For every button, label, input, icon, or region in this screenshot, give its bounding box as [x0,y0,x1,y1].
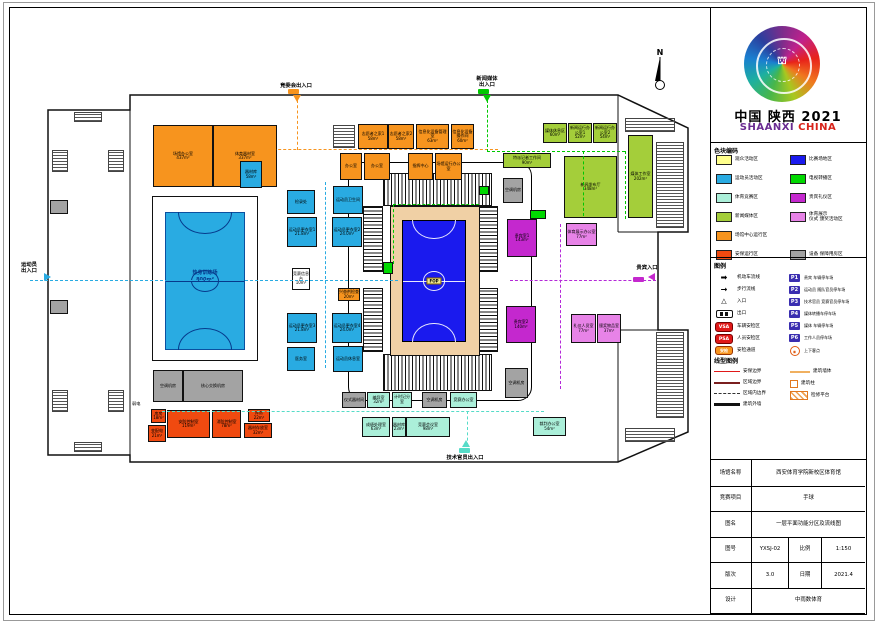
symbol-legend-item: P4媒体转播车停车场 [788,310,866,318]
stair-block [656,332,684,418]
room-area: 21m² [152,434,163,438]
room-area: 21.8m² [295,232,309,236]
room: 贵宾室2140m² [506,306,536,343]
room-label: 空调机房 [509,381,525,386]
symbol-legend-item: △入口 [714,298,782,305]
legend-label: 建筑外墙 [743,402,761,407]
room: 媒体工作室202m² [628,135,653,218]
entrance-marker-icon [462,440,470,447]
room [50,300,68,314]
room-area: 78m² [221,424,232,428]
line-legend-item: 建筑墙体 [790,369,831,374]
room: 信息化设备操作间60m² [451,124,474,149]
title-block-row: 图名一层平面功能分区及流线图 [710,511,865,538]
room: 媒体休息区60m² [543,123,567,143]
fop-court: FOP [402,220,466,342]
title-block-value: 3.0 [752,562,789,588]
symbol-legend-item: 出口 [714,310,782,318]
symbol-icon-cell: PSA [714,334,734,344]
line-legend-item: 建筑外墙 [714,402,761,407]
room: 裁判办公室54m² [533,417,566,436]
room: 场馆办公室437m² [153,125,213,187]
room-area: 24.0m² [340,232,354,236]
legend-swatch [790,193,806,203]
room-label: 运动员卫生间 [336,198,360,203]
room-area: 58m² [246,175,257,179]
room: 变配电21m² [148,425,166,442]
court-goal-arc-top [178,212,233,234]
panel-divider-1 [710,142,866,143]
legend-swatch [716,174,732,184]
line-legend-item: 安保边界 [714,369,761,374]
legend-swatch [716,155,732,165]
symbol-legend-item: P1贵宾 车辆停车场 [788,274,866,282]
room-area: 202m² [634,177,647,181]
legend-label: 人员安检区 [737,336,760,341]
room: 新闻运行办公室254m² [593,123,617,143]
legend-label: 区域内边界 [743,391,766,396]
room: 兴奋剂检查20m² [338,288,360,301]
north-needle [650,57,670,91]
symbol-icon-cell: P3 [788,298,801,306]
room-area: 24.0m² [340,328,354,332]
entrance-label: 贵宾入口 [628,265,666,271]
legend-label: 体育展示仪式 颁奖活动区 [809,212,843,223]
symbol-legend-item: ◉上下客点 [788,346,866,356]
line-sample [714,403,740,406]
room: 消防控制室78m² [212,410,241,438]
room-area: 22m² [254,416,265,420]
room-area: 58m² [368,137,379,141]
flow-line [325,182,326,368]
symbol-legend-item: P5媒体 车辆停车场 [788,322,866,330]
room [383,262,393,274]
room: 成绩处理室63m² [362,417,390,437]
title-block-row: 版次3.0日期2021.4 [710,562,865,589]
legend-label: 观众活动区 [735,157,758,162]
entrance-label: 运动员出入口 [12,262,46,275]
title-block-row: 图号YXSJ-02比例1:150 [710,537,865,563]
symbol-legend-item: P3技术官员 竞赛官员停车场 [788,298,866,306]
room: 仪式器材间 [342,392,366,408]
flow-line [393,204,394,264]
legend-label: 运动员活动区 [735,176,763,181]
room: 安防控制室119m² [167,410,210,438]
entrance-marker-icon [648,273,655,281]
color-legend-item: 运动员活动区 [716,174,763,184]
color-legend-item: 安保运行区 [716,250,758,260]
games-logo-glyph: ⛫ [744,54,820,69]
exit-icon [716,310,733,318]
parking-badge-icon: P2 [789,286,800,294]
title-block-value: 西安体育学院新校区体育馆 [752,460,865,486]
room-area: 32m² [373,400,384,404]
symbol-icon-cell [714,310,734,318]
stair-block [656,142,684,228]
color-legend-item: 体育竞赛区 [716,193,758,203]
room: 运动员更衣室121.8m² [287,217,317,247]
legend-label: 上下客点 [804,349,820,354]
parking-badge-icon: P4 [789,310,800,318]
room: 礼仪人员室77m² [571,314,596,343]
room-area: 58m² [396,137,407,141]
logo-title-en: SHAANXI CHINA [712,122,864,133]
legend-swatch [790,212,806,222]
spectator-stand [478,288,498,352]
room: 体育展示办公室77m² [566,223,597,246]
room: 空调机房 [153,370,183,402]
entrance-pill [633,277,644,282]
color-legend-item: 贵宾礼仪区 [790,193,832,203]
symbol-legend-item: P2运动员 随队官员停车场 [788,286,866,294]
room-area: 90m² [522,161,533,165]
room [50,200,68,214]
legend-label: 技术官员 竞赛官员停车场 [804,300,849,305]
legend-label: 贵宾礼仪区 [809,195,832,200]
room [530,210,546,219]
legend-label: 机动车流线 [737,275,760,280]
psa-badge-icon: PSA [715,334,733,344]
room-label: 检录处 [295,200,307,205]
stair-block [625,428,675,442]
flow-line [560,224,561,389]
color-legend-item: 新闻媒体区 [716,212,758,222]
room-area: 63m² [427,139,438,143]
title-block-label: 版次 [710,562,752,588]
room: 竞赛会议室98m² [406,417,450,437]
title-block-label: 日期 [789,562,822,588]
title-block-row: 场馆名称西安体育学院新校区体育馆 [710,460,865,487]
legend-swatch [716,231,732,241]
title-block-value: 一层平面功能分区及流线图 [752,511,865,537]
room: 指挥中心 [408,153,433,180]
room-label: 运动员休息室 [336,357,360,362]
legend-label: 贵宾 车辆停车场 [804,276,833,281]
color-legend-item: 体育展示仪式 颁奖活动区 [790,212,843,223]
platform-icon [790,391,808,400]
symbol-icon-cell: P2 [788,286,801,294]
legend-swatch [716,193,732,203]
room-area: 18m² [153,416,164,420]
room-area: 140m² [514,325,527,329]
legend-label: 建筑墙体 [813,369,831,374]
entrance-pill [459,448,470,453]
flow-line [30,280,398,281]
logo-china: CHINA [798,122,836,133]
legend-swatch [716,250,732,260]
room: 办公室 [340,153,362,180]
room: 信息化设备管理室63m² [416,124,449,149]
room: 办公室 [364,153,390,180]
title-block-value: 2021.4 [822,562,865,588]
title-block-label: 比例 [789,537,822,562]
symbol-legend-item: →步行流线 [714,286,782,294]
north-compass: N [646,48,674,94]
symbol-icon-cell: 安检 [714,346,734,355]
stair-block [52,390,68,412]
color-legend-item: 场馆中心运行区 [716,231,767,241]
color-legend-item: 电视转播区 [790,174,832,184]
title-block-value: 1:150 [822,537,865,562]
room-area: 348m² [584,187,597,191]
symbol-legend-title: 图例 [714,261,726,270]
color-legend-item: 观众活动区 [716,155,758,165]
symbol-icon-cell: ◉ [788,346,801,356]
parking-badge-icon: P5 [789,322,800,330]
room: 运动员卫生间 [333,186,363,214]
flow-line [487,151,625,152]
legend-label: 媒体转播车停车场 [804,312,836,317]
stair-block [74,112,102,122]
room: 运动员更衣室224.0m² [332,217,362,247]
room-area: 54m² [544,427,555,431]
parking-badge-icon: P1 [789,274,800,282]
parking-badge-icon: P6 [789,334,800,342]
legend-swatch [790,155,806,165]
line-legend-item: 检修平台 [790,391,829,400]
room: 新闻运行办公室152m² [568,123,592,143]
room: 颁奖物品室37m² [597,314,621,343]
room-label: 空调机房 [427,398,443,403]
stair-block [108,390,124,412]
symbol-icon-cell: △ [714,298,734,305]
title-block-value: 中雨数体育 [752,588,865,613]
title-block-row: 设计中雨数体育 [710,588,865,614]
symbol-icon-cell: P4 [788,310,801,318]
legend-label: 出口 [737,311,746,316]
flow-line [625,151,626,219]
room [479,186,489,195]
spectator-stand [363,206,383,272]
room: 器材库58m² [240,161,262,188]
legend-swatch [790,250,806,260]
legend-label: 媒体 车辆停车场 [804,324,833,329]
stair-block [108,150,124,172]
entrance-pill [478,89,489,94]
flow-line [583,151,584,216]
stair-block [625,118,675,132]
legend-label: 新闻媒体区 [735,214,758,219]
title-block-label: 设计 [710,588,752,613]
title-block-label: 场馆名称 [710,460,752,486]
room: 运动员更衣室321.8m² [287,313,317,343]
room-label: 计时记分室 [393,395,411,404]
room: 空调机房 [422,392,447,408]
room: 器材库23m² [392,417,406,437]
room: 计时记分室 [392,392,412,408]
north-label: N [646,48,674,57]
color-legend-item: 比赛场地区 [790,155,832,165]
room-area: 20m² [344,295,355,299]
court-goal-arc-top [412,220,455,239]
security-pill-icon: 安检 [715,346,733,355]
room: 器材存放室32m² [244,423,272,438]
court-goal-arc-bottom [178,328,233,350]
drawing-sheet: 热身训练场800m²FOP场馆办公室437m²体育器材室337m²器材库58m²… [0,0,877,622]
spectator-stand [383,354,492,391]
room-area: 54m² [600,135,611,139]
entrance-pill [288,89,299,94]
room-area: 60m² [550,133,561,137]
fop-label: FOP [426,278,441,285]
walk-flow-icon: → [721,286,728,294]
line-legend-item: 区域内边界 [714,391,766,396]
spectator-stand [478,206,498,272]
room-area: 98m² [423,427,434,431]
title-block-value: YXSJ-02 [752,537,789,562]
line-sample [714,393,740,394]
room: 空调机房 [503,178,523,203]
symbol-legend-item: ➡机动车流线 [714,274,782,282]
room: 志愿者之家258m² [388,124,414,149]
flow-line [162,411,544,412]
room-label: 办公室 [371,164,383,169]
legend-label: 电视转播区 [809,176,832,181]
title-block-label: 图名 [710,511,752,537]
symbol-legend-item: VSA车辆安检区 [714,322,782,332]
room: 竞赛办公室 [450,392,477,408]
legend-label: 安保边界 [743,369,761,374]
panel-divider-2 [710,257,866,258]
legend-label: 比赛场地区 [809,157,832,162]
line-sample [714,382,740,384]
training-court: 热身训练场800m² [165,212,245,350]
symbol-icon-cell: P1 [788,274,801,282]
legend-swatch [716,212,732,222]
line-legend-item: 区域边界 [714,380,761,385]
flow-line [393,204,479,205]
room-area: 21.8m² [295,328,309,332]
pickup-point-icon: ◉ [790,346,800,356]
legend-label: 工作人员停车场 [804,336,832,341]
logo-shaanxi: SHAANXI [740,122,794,133]
symbol-legend-item: P6工作人员停车场 [788,334,866,342]
room: 特派记者工作间90m² [503,153,551,168]
line-sample [714,371,740,372]
title-block-value: 手球 [752,486,865,511]
room-area: 23m² [394,427,405,431]
legend-label: 车辆安检区 [737,324,760,329]
parking-badge-icon: P3 [789,298,800,306]
training-court-label: 热身训练场800m² [166,270,244,283]
room-label: 办公室 [345,164,357,169]
line-sample [790,371,810,373]
room-area: 77m² [578,329,589,333]
color-legend-title: 色块编码 [714,146,738,155]
symbol-legend-item: 安检安检通道 [714,346,782,355]
room-label: 仪式器材间 [344,398,364,403]
legend-label: 运动员 随队官员停车场 [804,288,845,293]
title-block-row: 竞赛项目手球 [710,486,865,512]
room-label: 空调机房 [505,188,521,193]
color-legend-item: 设备 保障用房区 [790,250,843,260]
spectator-stand [363,288,383,352]
room: 贵宾室1143m² [507,219,537,257]
vsa-badge-icon: VSA [715,322,733,332]
room-label: 核心交换机房 [201,384,225,389]
room-label: 场馆运行办公室 [436,162,461,171]
room-label: 空调机房 [160,384,176,389]
legend-label: 区域边界 [743,380,761,385]
symbol-icon-cell: P5 [788,322,801,330]
entrance-marker-icon [293,95,301,102]
title-block-label: 图号 [710,537,752,562]
room-area: 63m² [371,427,382,431]
legend-label: 入口 [737,299,746,304]
flow-line [487,100,488,152]
line-legend-title: 线型图例 [714,356,738,365]
room: 编导室32m² [367,392,390,408]
symbol-legend-item: PSA人员安检区 [714,334,782,344]
room-label: 指挥中心 [413,164,429,169]
court-goal-arc-bottom [412,323,455,342]
room-area: 77m² [576,235,587,239]
room: 新闻发布厅348m² [564,156,617,218]
room-label: 医务室 [295,357,307,362]
room: 核心交换机房 [183,370,243,402]
room-label: 竞赛办公室 [454,398,474,403]
entrance-label: 新闻媒体出入口 [462,76,512,89]
symbol-icon-cell: ➡ [714,274,734,282]
room-area: 60m² [457,139,468,143]
room: 志愿者之家158m² [358,124,388,149]
entrance-icon: △ [721,298,726,305]
title-block-label: 竞赛项目 [710,486,752,511]
vehicle-flow-icon: ➡ [721,274,728,282]
entrance-marker-icon [44,273,51,281]
room: 检录处 [287,190,315,214]
room-area: 337m² [238,156,251,160]
stair-block [52,150,68,172]
legend-swatch [790,174,806,184]
flow-line [258,149,498,150]
room: 运动员休息室 [333,346,363,372]
plan-text: 弱电 [132,401,140,407]
room-area: 52m² [575,135,586,139]
room: 场馆运行办公室 [435,153,462,180]
legend-label: 步行流线 [737,287,755,292]
room-area: 143m² [515,238,528,242]
legend-label: 检修平台 [811,393,829,398]
entrance-marker-icon [483,95,491,102]
room-area: 119m² [182,424,195,428]
room: 医务室 [287,347,315,371]
legend-label: 场馆中心运行区 [735,233,767,238]
room-area: 37m² [604,329,615,333]
symbol-icon-cell: → [714,286,734,294]
entrance-label: 技术官员出入口 [430,455,500,461]
room: 竞赛信息台10m² [292,268,310,290]
legend-label: 安检通道 [737,348,755,353]
symbol-icon-cell: VSA [714,322,734,332]
legend-label: 建筑柱 [801,381,815,386]
column-icon [790,380,798,388]
room-area: 32m² [253,431,264,435]
room: 运动员更衣室424.0m² [332,313,362,343]
stair-block [74,442,102,452]
room-area: 437m² [176,156,189,160]
room-area: 10m² [296,281,307,285]
stair-block [333,125,355,148]
line-legend-item: 建筑柱 [790,380,815,388]
legend-label: 体育竞赛区 [735,195,758,200]
symbol-icon-cell: P6 [788,334,801,342]
room: 空调机房 [505,368,528,398]
flow-line [297,100,298,150]
